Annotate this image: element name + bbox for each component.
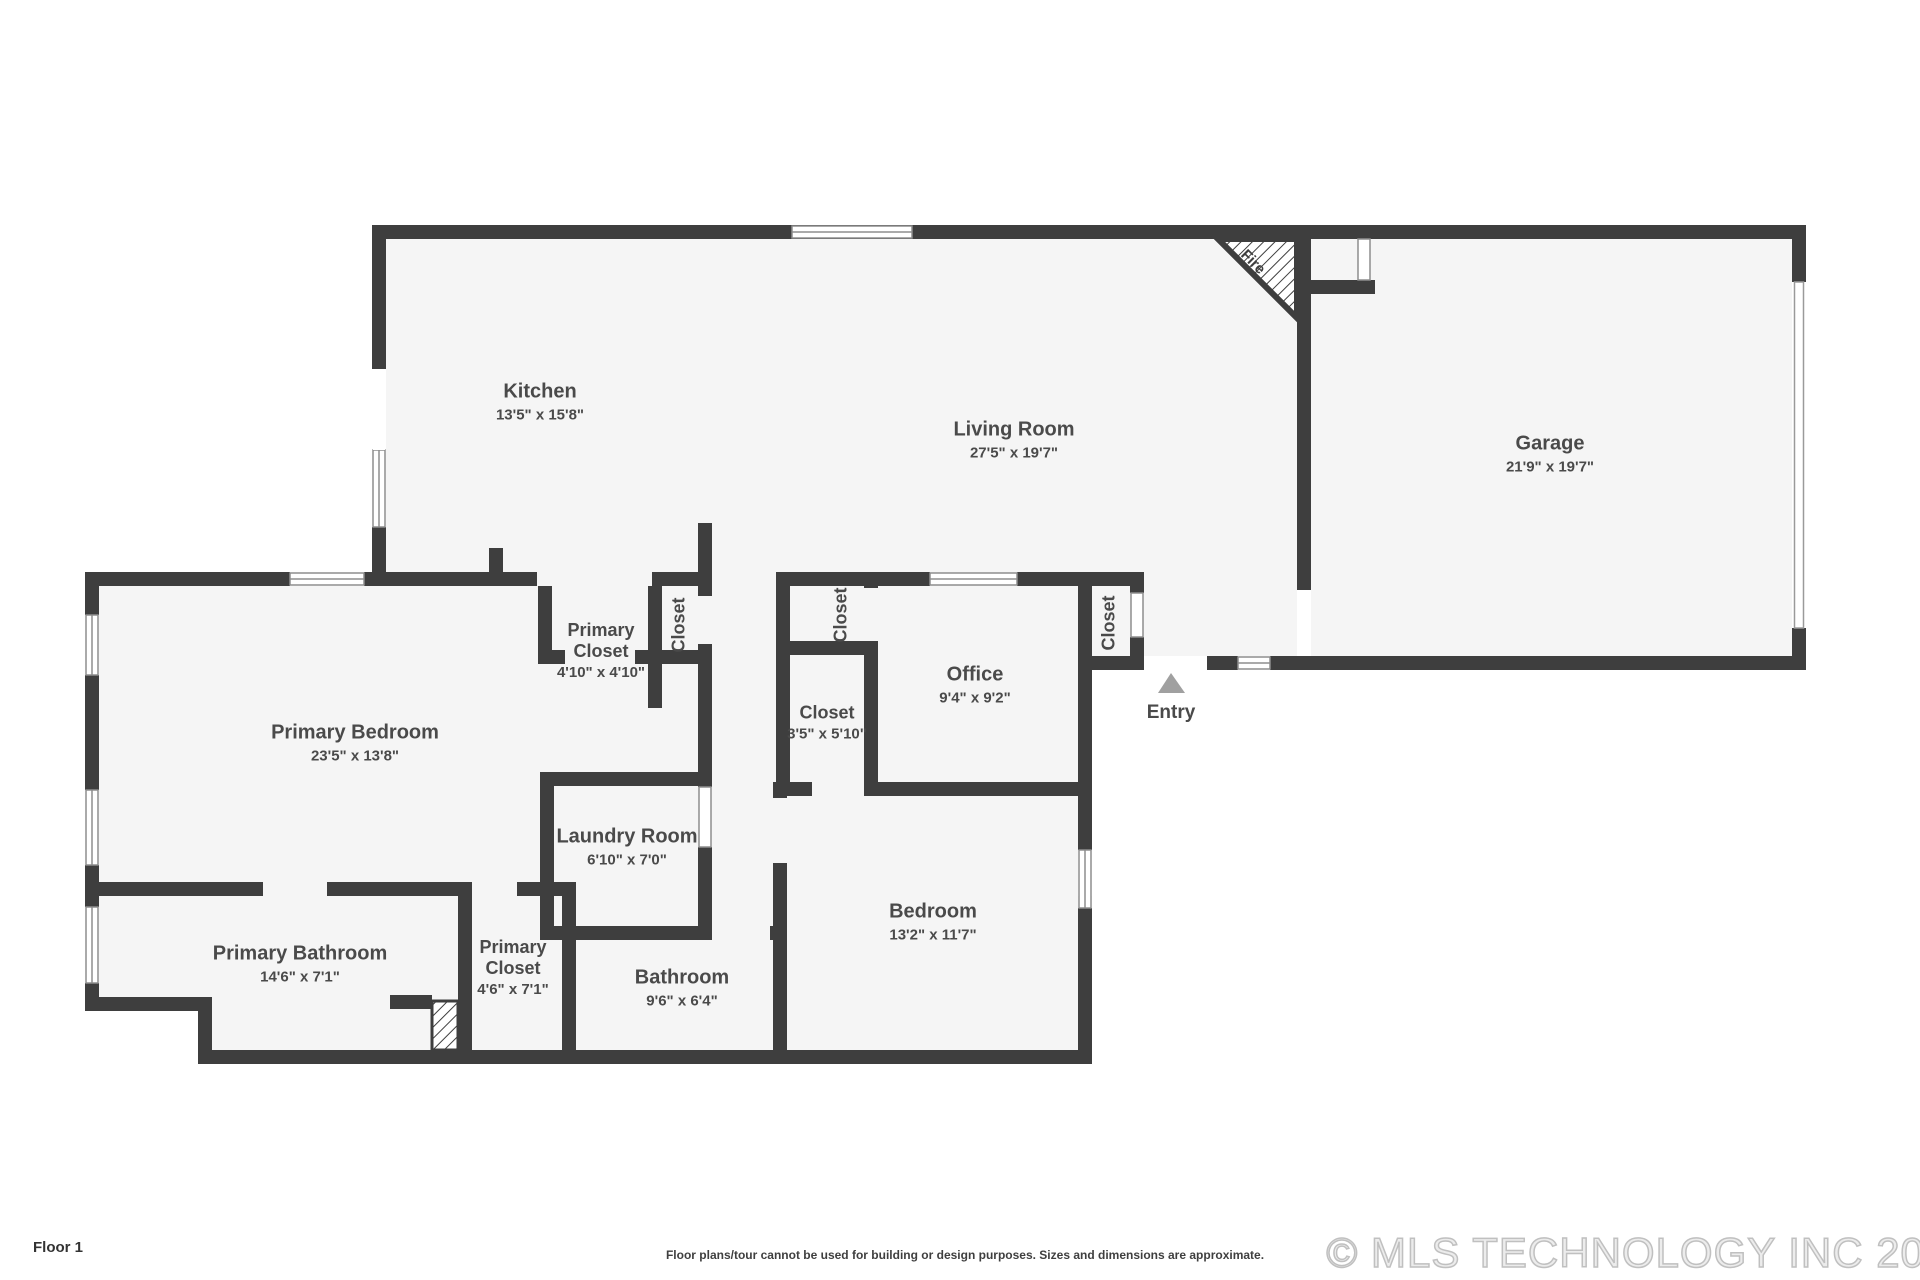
room-label-primary-bathroom: Primary Bathroom 14'6" x 7'1"	[213, 942, 388, 985]
room-dims: 4'10" x 4'10"	[539, 664, 664, 682]
room-label-primary-bedroom: Primary Bedroom 23'5" x 13'8"	[271, 721, 439, 764]
room-name: Laundry Room	[556, 825, 697, 849]
room-label-closet-upper-small: Closet	[668, 597, 689, 652]
room-dims: 13'2" x 11'7"	[889, 926, 977, 944]
room-dims: 6'10" x 7'0"	[556, 851, 697, 869]
room-name: Kitchen	[496, 380, 584, 404]
room-label-office: Office 9'4" x 9'2"	[939, 663, 1010, 706]
window-icon	[86, 907, 98, 983]
floor-plan-page: Kitchen 13'5" x 15'8" Living Room 27'5" …	[0, 0, 1920, 1280]
room-dims: 21'9" x 19'7"	[1506, 458, 1594, 476]
room-name: Office	[939, 663, 1010, 687]
room-name: Garage	[1506, 432, 1594, 456]
room-name: Primary Closet	[451, 937, 576, 979]
hatched-fixture-icon	[432, 1001, 458, 1050]
room-name: Primary Bedroom	[271, 721, 439, 745]
garage-door-icon	[1792, 282, 1806, 628]
room-name: Closet	[668, 597, 689, 652]
entry-label: Entry	[1147, 702, 1196, 724]
floor-plan-drawing	[0, 0, 1920, 1280]
door-icon	[1131, 593, 1143, 637]
disclaimer-text: Floor plans/tour cannot be used for buil…	[666, 1248, 1264, 1262]
room-dims: 4'6" x 7'1"	[451, 981, 576, 999]
window-icon	[86, 790, 98, 865]
window-icon	[930, 573, 1017, 585]
room-dims: 23'5" x 13'8"	[271, 747, 439, 765]
entry-arrow-icon	[1158, 673, 1185, 693]
copyright-watermark: © MLS TECHNOLOGY INC 2026	[1326, 1229, 1920, 1277]
room-name: Living Room	[953, 418, 1074, 442]
room-dims: 14'6" x 7'1"	[213, 968, 388, 986]
room-label-closet-entry: Closet	[1098, 595, 1119, 650]
floor-number-label: Floor 1	[33, 1239, 83, 1256]
room-name: Bedroom	[889, 900, 977, 924]
window-icon	[86, 615, 98, 675]
door-leaf-icon	[1358, 239, 1370, 280]
door-icon	[699, 787, 711, 847]
window-icon	[373, 369, 385, 450]
window-icon	[290, 573, 364, 585]
room-label-closet-hall: Closet 3'5" x 5'10"	[787, 703, 867, 744]
room-label-bathroom: Bathroom 9'6" x 6'4"	[635, 966, 729, 1009]
room-dims: 13'5" x 15'8"	[496, 406, 584, 424]
room-dims: 3'5" x 5'10"	[787, 726, 867, 744]
room-label-primary-closet-upper: Primary Closet 4'10" x 4'10"	[539, 620, 664, 682]
room-label-kitchen: Kitchen 13'5" x 15'8"	[496, 380, 584, 423]
room-label-garage: Garage 21'9" x 19'7"	[1506, 432, 1594, 475]
room-name: Closet	[830, 587, 851, 642]
room-dims: 27'5" x 19'7"	[953, 444, 1074, 462]
room-name: Closet	[787, 703, 867, 724]
room-label-laundry-room: Laundry Room 6'10" x 7'0"	[556, 825, 697, 868]
room-name: Primary Bathroom	[213, 942, 388, 966]
window-icon	[792, 226, 912, 238]
room-name: Bathroom	[635, 966, 729, 990]
room-label-bedroom: Bedroom 13'2" x 11'7"	[889, 900, 977, 943]
room-name: Closet	[1098, 595, 1119, 650]
room-label-primary-closet-lower: Primary Closet 4'6" x 7'1"	[451, 937, 576, 999]
room-label-closet-office: Closet	[830, 587, 851, 642]
room-label-living-room: Living Room 27'5" x 19'7"	[953, 418, 1074, 461]
room-dims: 9'6" x 6'4"	[635, 992, 729, 1010]
window-icon	[1238, 657, 1270, 669]
window-icon	[1079, 850, 1091, 908]
room-dims: 9'4" x 9'2"	[939, 689, 1010, 707]
window-icon	[373, 450, 385, 527]
room-name: Primary Closet	[539, 620, 664, 662]
